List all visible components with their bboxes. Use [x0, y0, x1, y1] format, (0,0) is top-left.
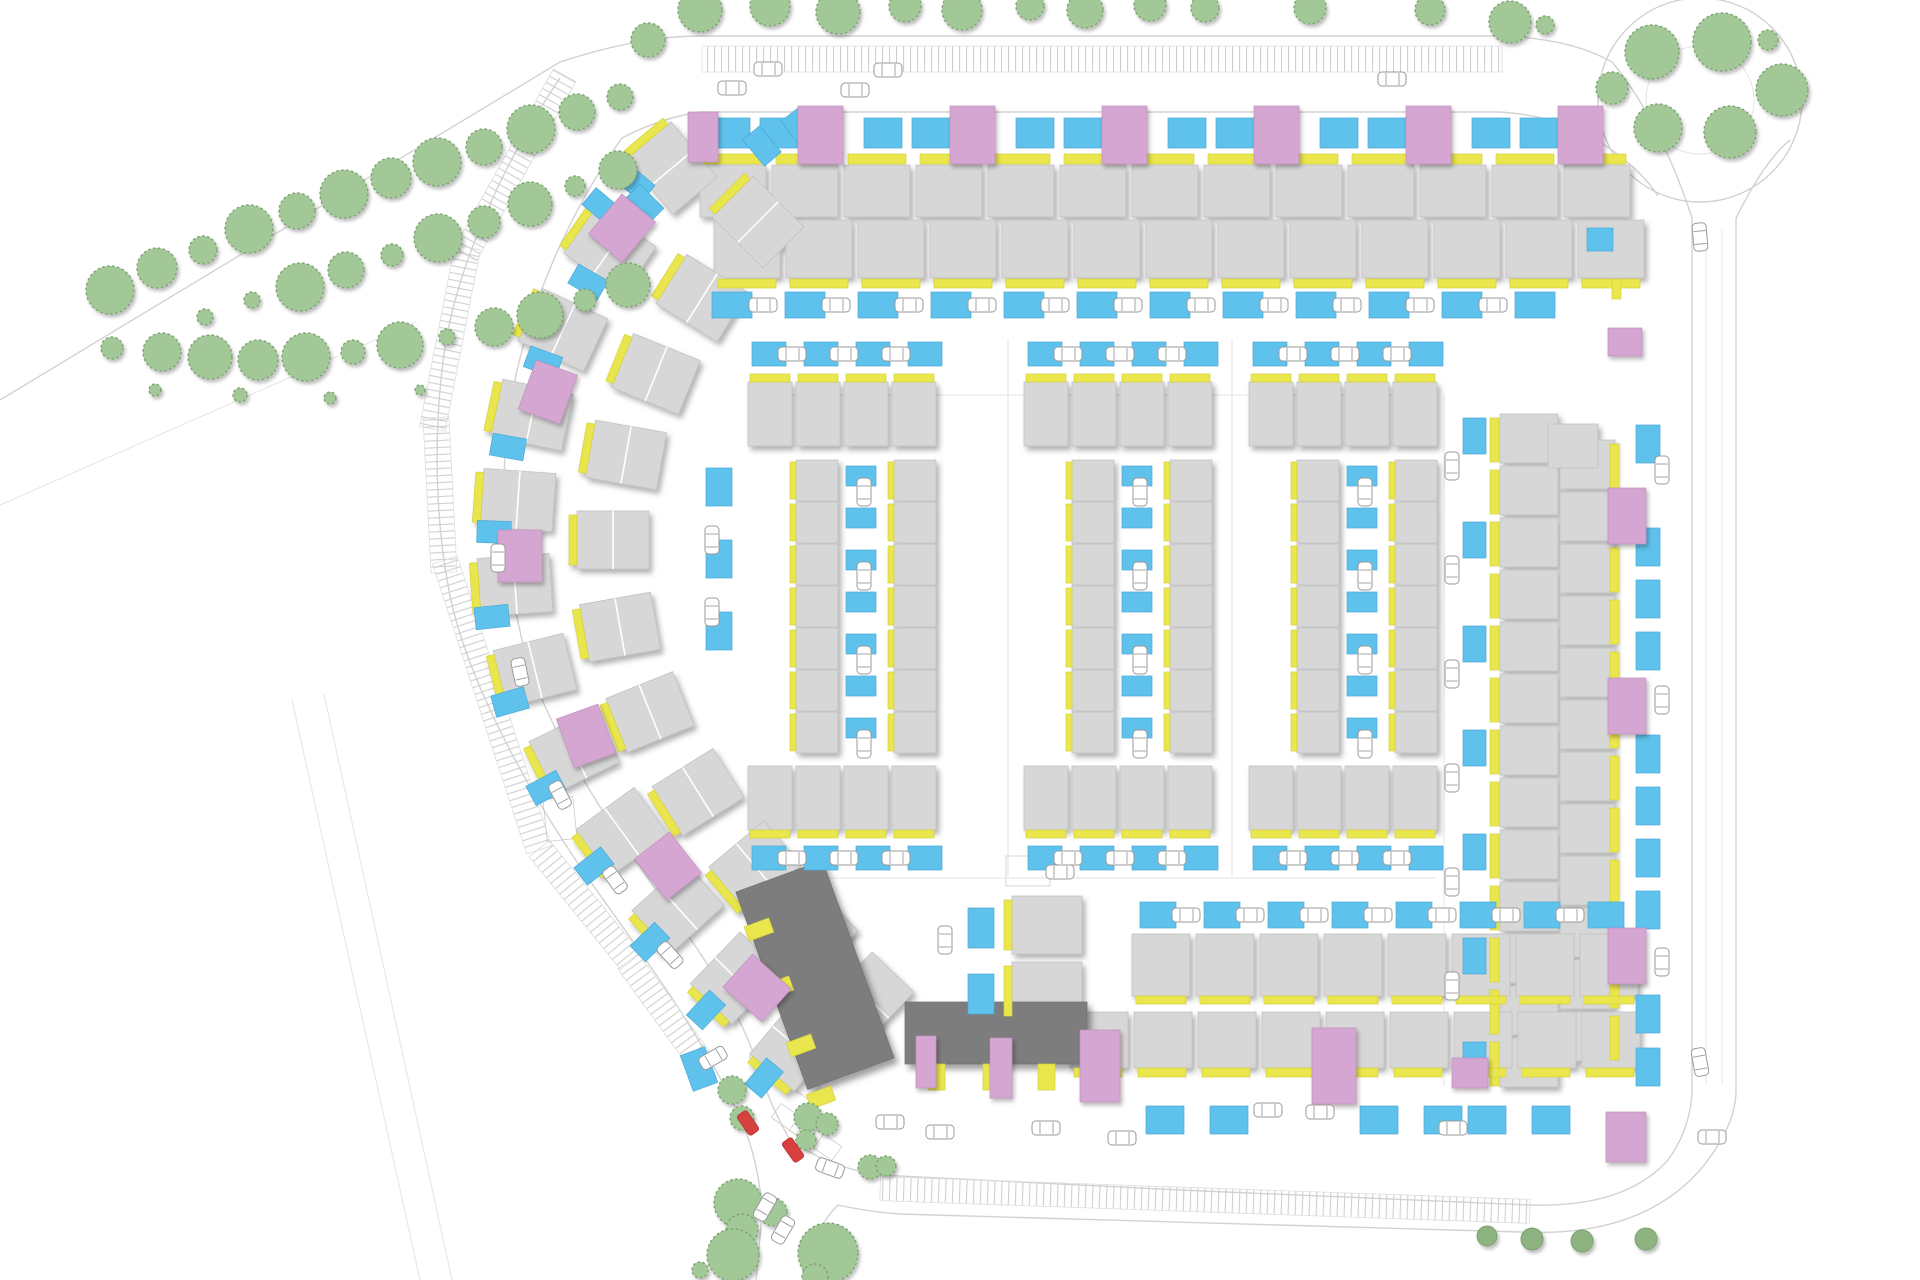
house-block: [1362, 220, 1428, 278]
entrance-strip: [888, 714, 894, 751]
entrance-strip: [790, 462, 796, 499]
entrance-strip: [1264, 996, 1314, 1004]
tree: [816, 0, 860, 34]
car-icon: [857, 730, 871, 758]
car-icon: [1236, 908, 1264, 922]
house-block: [1072, 544, 1114, 585]
car-icon: [1172, 908, 1200, 922]
house-block: [1393, 766, 1437, 830]
parking-space: [712, 292, 752, 318]
entrance-strip: [1584, 996, 1634, 1004]
entrance-strip: [1251, 374, 1291, 382]
parking-space: [1347, 676, 1377, 696]
parking-space: [908, 846, 942, 870]
car-icon: [718, 81, 746, 95]
parking-space: [1332, 902, 1368, 928]
car-icon: [926, 1125, 954, 1139]
house-block: [748, 382, 792, 446]
house-block: [1395, 670, 1437, 711]
car-icon: [705, 598, 719, 626]
house-block: [1260, 934, 1318, 996]
parking-space: [846, 592, 876, 612]
parking-space: [1463, 626, 1486, 662]
entrance-strip: [1389, 462, 1395, 499]
entrance-strip: [1164, 546, 1170, 583]
car-icon: [841, 83, 869, 97]
entrance-strip: [1490, 626, 1499, 670]
car-icon: [1445, 556, 1459, 584]
house-block: [1196, 934, 1254, 996]
entrance-strip: [1490, 470, 1499, 514]
car-icon: [491, 544, 505, 572]
parking-space: [1515, 292, 1555, 318]
tree: [508, 182, 552, 226]
house-block: [1560, 544, 1615, 593]
tree: [1693, 13, 1751, 71]
entrance-strip: [888, 588, 894, 625]
entrance-strip: [1200, 996, 1250, 1004]
entrance-strip: [790, 630, 796, 667]
house-block: [1560, 492, 1615, 541]
entrance-strip: [1610, 548, 1619, 592]
paving-hatch-strip: [702, 46, 1502, 72]
house-block: [1395, 502, 1437, 543]
house-block: [1120, 766, 1164, 830]
parking-space: [912, 118, 950, 148]
entrance-strip: [1164, 714, 1170, 751]
car-icon: [1054, 851, 1082, 865]
house-block: [1395, 712, 1437, 753]
parking-space: [1223, 292, 1263, 318]
parking-space: [1472, 118, 1510, 148]
car-icon: [1331, 347, 1359, 361]
car-icon: [601, 865, 629, 896]
tree: [475, 308, 513, 346]
house-block: [1132, 165, 1198, 217]
parking-space: [1636, 580, 1660, 618]
entrance-strip: [888, 672, 894, 709]
house-block: [1297, 628, 1339, 669]
house-block: [1324, 934, 1382, 996]
parking-space: [858, 292, 898, 318]
house-block: [1168, 766, 1212, 830]
car-icon: [1445, 972, 1459, 1000]
entrance-strip: [1328, 996, 1378, 1004]
house-block: [1420, 165, 1486, 217]
parking-space: [706, 468, 732, 506]
parking-space: [1122, 508, 1152, 528]
car-icon: [1108, 1131, 1136, 1145]
shrub: [1635, 1228, 1657, 1250]
entrance-strip: [1395, 374, 1435, 382]
parking-space: [1122, 592, 1152, 612]
entrance-strip: [1066, 588, 1072, 625]
entrance-strip: [1490, 418, 1499, 462]
entrance-strip: [934, 279, 992, 288]
car-icon: [1445, 452, 1459, 480]
car-icon: [1378, 72, 1406, 86]
tree: [1294, 0, 1326, 24]
house-block: [1548, 424, 1598, 468]
tree: [507, 105, 555, 153]
parking-space: [1636, 891, 1660, 929]
entrance-strip: [1164, 504, 1170, 541]
car-icon: [1331, 851, 1359, 865]
entrance-strip: [1291, 588, 1297, 625]
tree: [692, 1262, 708, 1278]
house-block: [1393, 382, 1437, 446]
tree: [559, 94, 595, 130]
house-block: [1072, 670, 1114, 711]
house-block: [1560, 596, 1615, 645]
car-icon: [968, 298, 996, 312]
tree: [225, 205, 273, 253]
site-plan-drawing: [0, 0, 1920, 1280]
house-block: [1560, 752, 1615, 801]
entrance-strip: [1395, 830, 1435, 838]
entrance-strip: [790, 504, 796, 541]
tree: [381, 244, 403, 266]
house-block: [796, 670, 838, 711]
house-block: [1024, 766, 1068, 830]
tree: [244, 292, 260, 308]
house-block: [1390, 1012, 1448, 1068]
car-icon: [1691, 1047, 1710, 1077]
parking-space: [1636, 1048, 1660, 1086]
tree: [1016, 0, 1044, 20]
parking-space: [1463, 730, 1486, 766]
house-block: [894, 544, 936, 585]
house-block: [844, 382, 888, 446]
accent-house-block: [688, 112, 718, 162]
house-block: [1500, 674, 1558, 723]
house-block: [1002, 220, 1068, 278]
house-block: [1146, 220, 1212, 278]
entrance-strip: [1164, 588, 1170, 625]
tree: [606, 263, 650, 307]
arc-house-back: [569, 511, 649, 569]
car-icon: [1364, 908, 1392, 922]
car-icon: [1479, 298, 1507, 312]
entrance-strip: [1066, 546, 1072, 583]
entrance-strip: [1164, 630, 1170, 667]
house-block: [894, 460, 936, 501]
house-block: [894, 586, 936, 627]
car-icon: [1445, 660, 1459, 688]
parking-space: [1296, 292, 1336, 318]
parking-space: [1122, 676, 1152, 696]
parking-space: [1520, 118, 1558, 148]
entrance-strip: [1610, 756, 1619, 800]
entrance-strip: [1202, 1068, 1250, 1077]
house-block: [1500, 830, 1558, 879]
house-block: [1518, 1012, 1576, 1068]
house-block: [1560, 856, 1615, 905]
parking-space: [1140, 902, 1176, 928]
house-block: [894, 670, 936, 711]
car-icon: [1698, 1130, 1726, 1144]
house-block: [858, 220, 924, 278]
entrance-strip: [750, 830, 790, 838]
parking-space: [1064, 118, 1102, 148]
entrance-strip: [798, 374, 838, 382]
house-block: [1560, 700, 1615, 749]
house-block: [796, 628, 838, 669]
entrance-strip: [1496, 154, 1554, 164]
car-icon: [1406, 298, 1434, 312]
house-block: [1560, 648, 1615, 697]
accent-house-block: [990, 1038, 1012, 1098]
car-icon: [1133, 646, 1147, 674]
house-block: [1074, 220, 1140, 278]
car-icon: [749, 298, 777, 312]
parking-space: [1320, 118, 1358, 148]
parking-space: [1150, 292, 1190, 318]
house-block: [1500, 778, 1558, 827]
car-icon: [1358, 478, 1372, 506]
entrance-strip: [1150, 279, 1208, 288]
entrance-strip: [846, 830, 886, 838]
house-block: [1168, 382, 1212, 446]
car-icon: [1306, 1105, 1334, 1119]
parking-space: [1184, 846, 1218, 870]
parking-space: [846, 508, 876, 528]
tree: [1191, 0, 1219, 22]
entrance-strip: [1490, 522, 1499, 566]
arc-house-back: [578, 419, 667, 490]
house-block: [1072, 628, 1114, 669]
parking-space: [1636, 995, 1660, 1033]
car-icon: [1358, 730, 1372, 758]
entrance-strip: [1490, 834, 1499, 878]
entrance-strip: [790, 279, 848, 288]
tree: [233, 388, 247, 402]
parking-space: [474, 604, 510, 629]
house-block: [1072, 382, 1116, 446]
parking-space: [1463, 834, 1486, 870]
house-block: [1170, 544, 1212, 585]
house-block: [1170, 460, 1212, 501]
house-block: [844, 165, 910, 217]
parking-space: [1347, 508, 1377, 528]
entrance-strip: [1490, 782, 1499, 826]
parking-space: [846, 676, 876, 696]
tree: [607, 84, 633, 110]
entrance-strip: [1394, 1068, 1442, 1077]
tree: [678, 0, 722, 32]
car-icon: [895, 298, 923, 312]
parking-space: [1216, 118, 1254, 148]
parking-space: [1409, 846, 1443, 870]
parking-space: [1004, 292, 1044, 318]
house-block: [1492, 165, 1558, 217]
entrance-strip: [1522, 1068, 1570, 1077]
entrance-strip: [1610, 444, 1619, 488]
house-block: [1170, 628, 1212, 669]
parking-space: [1016, 118, 1054, 148]
house-block: [1072, 586, 1114, 627]
tree: [341, 340, 365, 364]
car-icon: [882, 347, 910, 361]
parking-space: [1636, 735, 1660, 773]
parking-space: [908, 342, 942, 366]
house-block: [1170, 670, 1212, 711]
parking-space: [1077, 292, 1117, 318]
entrance-strip: [1122, 830, 1162, 838]
tree: [1489, 1, 1531, 43]
parking-space: [1268, 902, 1304, 928]
accent-house-block: [1406, 106, 1451, 164]
entrance-strip: [1136, 996, 1186, 1004]
entrance-strip: [1389, 504, 1395, 541]
car-icon: [1187, 298, 1215, 312]
parking-space: [968, 974, 994, 1014]
house-block: [1170, 712, 1212, 753]
entrance-strip: [1006, 279, 1064, 288]
entrance-strip: [894, 830, 934, 838]
house-block: [1134, 1012, 1192, 1068]
house-block: [1132, 934, 1190, 996]
parking-space: [1347, 592, 1377, 612]
house-block: [1500, 726, 1558, 775]
entrance-strip: [1389, 630, 1395, 667]
parking-space: [1204, 902, 1240, 928]
house-block: [1249, 382, 1293, 446]
car-icon: [1133, 730, 1147, 758]
house-block: [1297, 766, 1341, 830]
house-block: [1345, 382, 1389, 446]
tree: [1758, 30, 1778, 50]
house-block: [1249, 766, 1293, 830]
accent-house-block: [798, 106, 843, 164]
tree: [86, 266, 134, 314]
tree: [279, 193, 315, 229]
tree: [574, 289, 596, 311]
tree: [324, 392, 336, 404]
house-block: [1297, 544, 1339, 585]
parking-space: [1636, 787, 1660, 825]
car-icon: [1032, 1121, 1060, 1135]
house-block: [1564, 165, 1630, 217]
shrub: [1521, 1228, 1543, 1250]
house-block: [796, 382, 840, 446]
car-icon: [1114, 298, 1142, 312]
tree: [1536, 16, 1554, 34]
car-icon: [814, 1157, 845, 1180]
car-icon: [1279, 347, 1307, 361]
house-block: [1072, 460, 1114, 501]
parking-space: [1442, 292, 1482, 318]
car-icon: [1655, 948, 1669, 976]
accent-house-block: [1606, 1112, 1646, 1162]
car-icon: [822, 298, 850, 312]
entrance-strip: [1438, 279, 1496, 288]
tree: [189, 236, 217, 264]
parking-space: [1460, 902, 1496, 928]
parking-space: [1468, 1106, 1506, 1134]
tree: [816, 1113, 838, 1135]
house-block: [1560, 804, 1615, 853]
parking-space: [1587, 228, 1613, 251]
car-icon: [1133, 562, 1147, 590]
entrance-strip: [992, 154, 1050, 164]
entrance-strip: [1122, 374, 1162, 382]
entrance-strip: [888, 630, 894, 667]
car-icon: [874, 63, 902, 77]
entrance-strip: [1456, 996, 1506, 1004]
entrance-strip: [1520, 996, 1570, 1004]
house-block: [1012, 896, 1082, 954]
house-block: [796, 766, 840, 830]
entrance-strip: [1366, 279, 1424, 288]
entrance-strip: [1352, 154, 1410, 164]
house-block: [844, 766, 888, 830]
house-block: [1218, 220, 1284, 278]
car-icon: [1492, 908, 1520, 922]
car-icon: [1254, 1103, 1282, 1117]
car-icon: [1383, 851, 1411, 865]
entrance-strip: [888, 546, 894, 583]
entrance-strip: [1490, 938, 1499, 982]
parking-space: [785, 292, 825, 318]
house-block: [1395, 460, 1437, 501]
tree: [137, 248, 177, 288]
entrance-strip: [1490, 1042, 1499, 1086]
accent-house-block: [1452, 1058, 1488, 1088]
entrance-strip: [1066, 672, 1072, 709]
car-icon: [1054, 347, 1082, 361]
car-icon: [1655, 456, 1669, 484]
tree: [276, 263, 324, 311]
arc-house-back: [604, 331, 700, 415]
entrance-strip: [1078, 279, 1136, 288]
tree: [796, 1130, 816, 1150]
entrance-strip: [1170, 374, 1210, 382]
car-icon: [1556, 908, 1584, 922]
house-block: [796, 460, 838, 501]
car-icon: [1445, 764, 1459, 792]
car-icon: [1158, 851, 1186, 865]
tree: [1634, 104, 1682, 152]
house-block: [1297, 712, 1339, 753]
entrance-strip: [1610, 600, 1619, 644]
parking-space: [1636, 632, 1660, 670]
entrance-strip: [1291, 546, 1297, 583]
house-block: [1500, 570, 1558, 619]
car-icon: [1106, 851, 1134, 865]
tree: [439, 329, 455, 345]
house-block: [1170, 502, 1212, 543]
entrance-strip: [1074, 830, 1114, 838]
accent-house-block: [1608, 678, 1646, 734]
house-block: [1120, 382, 1164, 446]
tree: [414, 214, 462, 262]
entrance-strip: [1389, 672, 1395, 709]
house-block: [796, 502, 838, 543]
entrance-strip: [1490, 678, 1499, 722]
car-icon: [1428, 908, 1456, 922]
entrance-strip: [846, 374, 886, 382]
accent-house-block: [1558, 106, 1603, 164]
parking-space: [1463, 418, 1486, 454]
house-block: [1290, 220, 1356, 278]
house-block: [892, 382, 936, 446]
entrance-strip: [798, 830, 838, 838]
tree: [750, 0, 790, 26]
entrance-strip: [1138, 1068, 1186, 1077]
entrance-strip: [1299, 374, 1339, 382]
parking-space: [1532, 1106, 1570, 1134]
